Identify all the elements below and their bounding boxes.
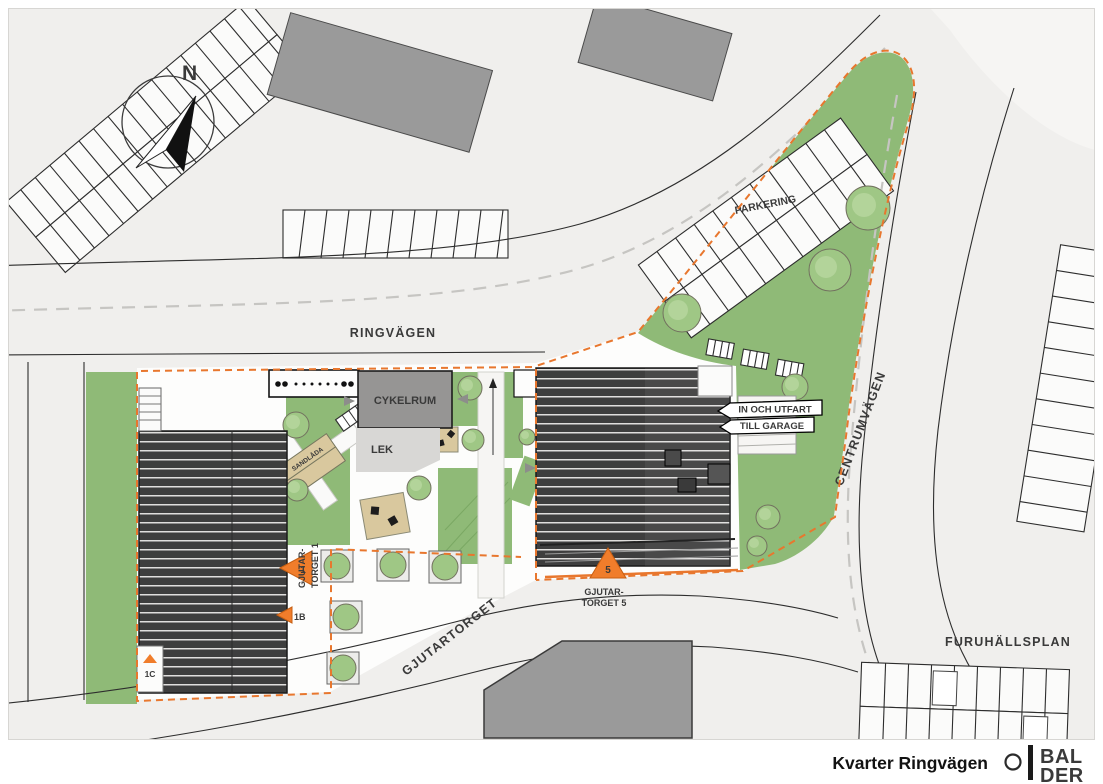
garage-sign-line1: IN OCH UTFART: [738, 405, 812, 416]
gt5-number: 5: [605, 565, 611, 576]
garage-sign-line2: TILL GARAGE: [740, 421, 804, 432]
compass-label: N: [182, 62, 197, 85]
gt1-label-line1: GJUTAR-: [297, 549, 307, 588]
ringvagen-label: RINGVÄGEN: [350, 325, 437, 340]
margin-left: [0, 0, 8, 784]
entrance-1c: 1C: [137, 646, 163, 692]
parking-row-north: [283, 210, 508, 258]
balder-logo-line2: DER: [1040, 765, 1084, 784]
bike-parking: [269, 370, 359, 397]
balder-logo-bar-icon: [1028, 745, 1033, 780]
garage-sign: IN OCH UTFART TILL GARAGE: [718, 400, 822, 434]
gt5-label-line2: TORGET 5: [582, 598, 627, 608]
furuhallsplan-label: FURUHÄLLSPLAN: [945, 634, 1071, 649]
cykelrum-label: CYKELRUM: [374, 395, 436, 407]
gt1-label-line2: TORGET 1: [310, 543, 320, 588]
site-plan-sheet: N PARKERING: [0, 0, 1103, 784]
entrance-1b-label: 1B: [294, 612, 306, 622]
site-plan-svg: N PARKERING: [0, 0, 1103, 784]
sheet-title: Kvarter Ringvägen: [832, 753, 988, 773]
margin-right: [1095, 0, 1103, 784]
lek-label: LEK: [371, 444, 393, 456]
building-east: [536, 366, 738, 577]
car-outline: [932, 671, 957, 706]
building-west: 1C: [137, 388, 287, 693]
green-strip-west: [86, 372, 137, 704]
entrance-1c-label: 1C: [145, 669, 156, 679]
stairs: [139, 388, 161, 431]
margin-top: [0, 0, 1103, 8]
picnic-area-center: [360, 492, 410, 539]
lek-area: [356, 428, 440, 472]
gt5-label-line1: GJUTAR-: [584, 587, 623, 597]
